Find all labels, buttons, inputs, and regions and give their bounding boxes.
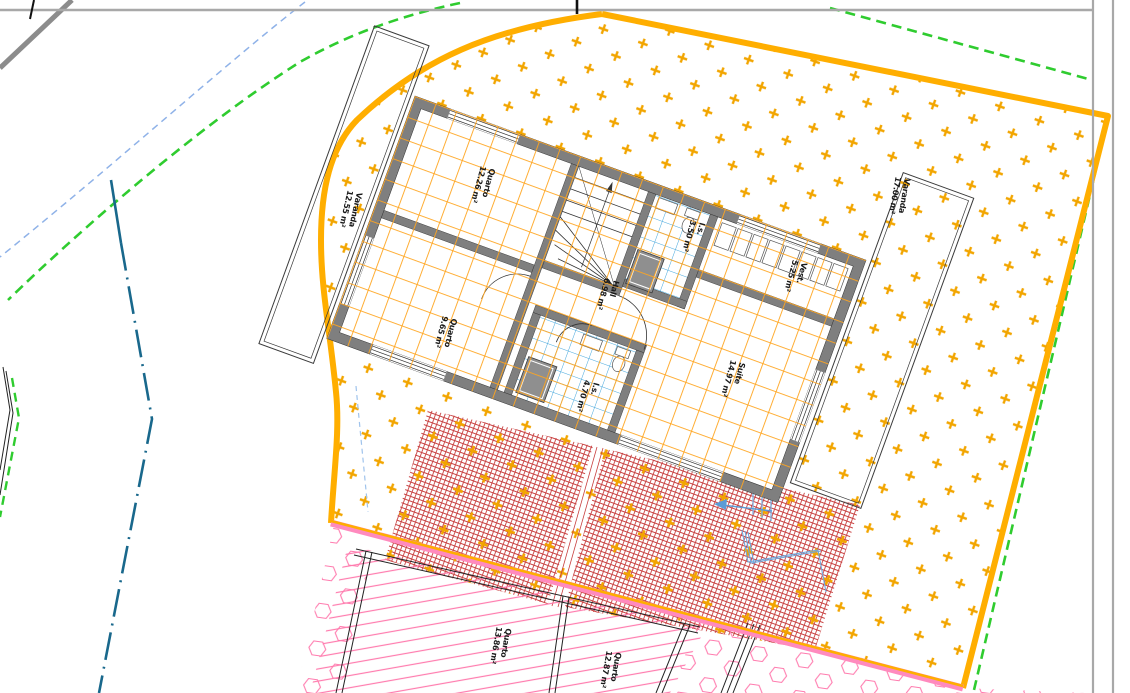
floor-plan-canvas: Varanda12.55 m² Quarto12.26 m² Quarto9.6… <box>0 0 1130 693</box>
property-chevron-black <box>0 367 13 495</box>
road-axis-teal-dashdot <box>99 243 152 693</box>
property-chevron-green <box>0 378 19 517</box>
road-axis-teal-solid <box>111 180 121 243</box>
setback-blue-dashed-curve <box>0 2 305 257</box>
